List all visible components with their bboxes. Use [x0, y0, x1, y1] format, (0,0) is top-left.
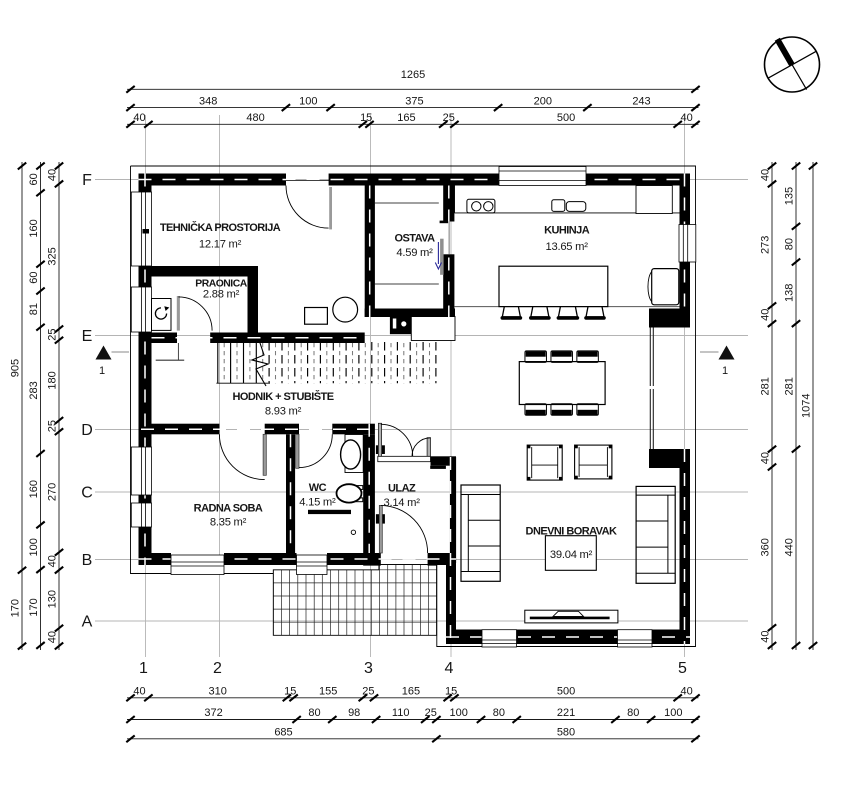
svg-text:372: 372	[204, 707, 222, 719]
svg-text:155: 155	[319, 685, 337, 697]
svg-text:1: 1	[139, 660, 148, 677]
svg-text:39.04 m²: 39.04 m²	[550, 549, 593, 561]
svg-text:685: 685	[274, 726, 292, 738]
svg-text:2.88 m²: 2.88 m²	[203, 288, 240, 300]
svg-text:2: 2	[213, 660, 222, 677]
svg-text:A: A	[82, 613, 93, 630]
svg-text:1: 1	[722, 365, 728, 377]
svg-text:221: 221	[557, 707, 575, 719]
svg-text:B: B	[82, 552, 93, 569]
svg-text:DNEVNI BORAVAK: DNEVNI BORAVAK	[526, 526, 618, 538]
svg-text:80: 80	[627, 707, 639, 719]
svg-text:100: 100	[450, 707, 468, 719]
svg-text:E: E	[82, 328, 93, 345]
svg-text:243: 243	[632, 95, 650, 107]
svg-text:100: 100	[28, 538, 40, 556]
svg-text:348: 348	[199, 95, 217, 107]
svg-text:4.15 m²: 4.15 m²	[299, 496, 336, 508]
svg-text:D: D	[81, 422, 93, 439]
svg-text:8.93 m²: 8.93 m²	[265, 405, 302, 417]
svg-text:500: 500	[557, 685, 575, 697]
svg-text:3.14 m²: 3.14 m²	[384, 497, 421, 509]
svg-text:40: 40	[680, 685, 692, 697]
svg-text:60: 60	[28, 173, 40, 185]
svg-text:281: 281	[784, 377, 796, 395]
svg-text:500: 500	[557, 112, 575, 124]
svg-text:80: 80	[308, 707, 320, 719]
svg-text:ULAZ: ULAZ	[388, 483, 416, 495]
svg-text:40: 40	[760, 169, 772, 181]
svg-text:170: 170	[10, 599, 22, 617]
svg-text:135: 135	[784, 187, 796, 205]
svg-text:480: 480	[246, 112, 264, 124]
svg-text:160: 160	[28, 480, 40, 498]
svg-text:165: 165	[402, 685, 420, 697]
svg-text:25: 25	[425, 707, 437, 719]
svg-text:1074: 1074	[801, 394, 813, 418]
svg-text:40: 40	[133, 112, 145, 124]
svg-text:375: 375	[405, 95, 423, 107]
svg-text:F: F	[82, 172, 92, 189]
svg-text:130: 130	[47, 590, 59, 608]
svg-text:440: 440	[784, 538, 796, 556]
svg-text:C: C	[81, 484, 93, 501]
svg-text:40: 40	[680, 112, 692, 124]
svg-text:40: 40	[760, 630, 772, 642]
svg-text:273: 273	[760, 236, 772, 254]
svg-text:4: 4	[445, 660, 454, 677]
svg-text:RADNA SOBA: RADNA SOBA	[194, 503, 263, 515]
svg-text:170: 170	[28, 598, 40, 616]
svg-text:WC: WC	[309, 482, 327, 494]
svg-text:40: 40	[47, 631, 59, 643]
svg-text:1265: 1265	[401, 69, 425, 81]
svg-text:360: 360	[760, 538, 772, 556]
svg-text:281: 281	[760, 377, 772, 395]
svg-text:12.17 m²: 12.17 m²	[199, 239, 242, 251]
svg-text:25: 25	[443, 112, 455, 124]
svg-text:TEHNIČKA PROSTORIJA: TEHNIČKA PROSTORIJA	[160, 221, 281, 234]
svg-text:HODNIK + STUBIŠTE: HODNIK + STUBIŠTE	[233, 390, 334, 403]
svg-text:160: 160	[28, 219, 40, 237]
svg-text:8.35 m²: 8.35 m²	[210, 517, 247, 529]
svg-text:98: 98	[348, 707, 360, 719]
svg-text:310: 310	[209, 685, 227, 697]
svg-text:100: 100	[664, 707, 682, 719]
svg-text:283: 283	[28, 381, 40, 399]
svg-text:905: 905	[10, 359, 22, 377]
svg-text:81: 81	[28, 303, 40, 315]
svg-text:15: 15	[284, 685, 296, 697]
svg-text:80: 80	[784, 238, 796, 250]
svg-text:270: 270	[47, 483, 59, 501]
svg-text:80: 80	[493, 707, 505, 719]
svg-text:165: 165	[397, 112, 415, 124]
svg-text:40: 40	[760, 309, 772, 321]
svg-text:OSTAVA: OSTAVA	[394, 232, 435, 244]
svg-text:KUHINJA: KUHINJA	[544, 225, 590, 237]
svg-text:60: 60	[28, 271, 40, 283]
svg-text:110: 110	[392, 707, 410, 719]
svg-text:5: 5	[678, 660, 687, 677]
svg-text:100: 100	[299, 95, 317, 107]
svg-text:25: 25	[47, 328, 59, 340]
svg-text:25: 25	[47, 420, 59, 432]
svg-text:200: 200	[534, 95, 552, 107]
svg-text:1: 1	[99, 365, 105, 377]
svg-text:3: 3	[364, 660, 373, 677]
svg-text:580: 580	[557, 726, 575, 738]
svg-text:40: 40	[47, 555, 59, 567]
svg-text:40: 40	[133, 685, 145, 697]
svg-text:15: 15	[360, 112, 372, 124]
svg-text:40: 40	[760, 452, 772, 464]
svg-text:4.59 m²: 4.59 m²	[396, 247, 433, 259]
svg-text:180: 180	[47, 371, 59, 389]
svg-text:40: 40	[47, 169, 59, 181]
svg-text:15: 15	[445, 685, 457, 697]
svg-text:138: 138	[784, 284, 796, 302]
svg-text:325: 325	[47, 247, 59, 265]
svg-text:25: 25	[362, 685, 374, 697]
svg-text:13.65 m²: 13.65 m²	[546, 241, 589, 253]
